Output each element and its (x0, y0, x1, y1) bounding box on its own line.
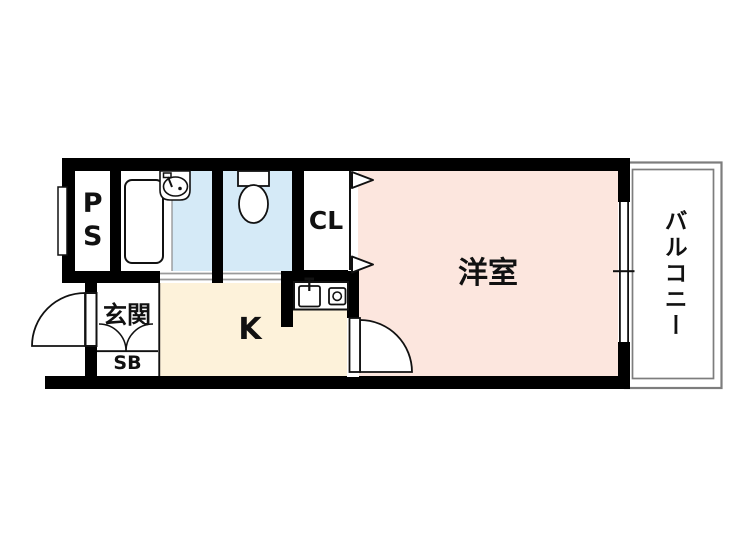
wall-top (62, 158, 630, 171)
stove-burner-ring (333, 292, 341, 300)
shoebox-door-arcs (99, 324, 153, 351)
closet-door-line (349, 171, 351, 270)
balcony-inner-rail (633, 170, 714, 379)
entrance-door-arc (32, 293, 85, 346)
wall-kitchen-counter-stub (281, 271, 293, 327)
wall-toilet-closet (292, 171, 304, 271)
toilet-tank (238, 171, 269, 186)
wall-right-lower (618, 342, 630, 377)
window-center-latch (613, 270, 635, 272)
bathtub-icon (125, 180, 163, 263)
bathroom-sink-icon (160, 171, 190, 200)
toilet-bowl (239, 185, 268, 223)
wall-entry-stub-bottom (85, 346, 97, 377)
floor-plan: PS CL 洋室 K 玄関 SB バルコニー (0, 0, 750, 550)
ps-window (58, 187, 67, 255)
wall-bath-toilet (212, 171, 223, 283)
entrance-shoebox-divider (97, 350, 158, 352)
entrance-door (32, 293, 97, 346)
wall-bottom (45, 376, 630, 389)
western-room-door-leaf (350, 318, 361, 372)
balcony-outline (625, 163, 722, 389)
wall-under-ps (62, 271, 160, 283)
entrance-kitchen-divider (158, 283, 160, 376)
floor-plan-drawing (0, 0, 750, 550)
kitchen-counter (294, 278, 348, 310)
toilet-icon (238, 171, 269, 223)
wall-right-upper (618, 171, 630, 202)
wall-ps-bath (110, 171, 121, 271)
entrance-door-leaf (86, 293, 97, 346)
